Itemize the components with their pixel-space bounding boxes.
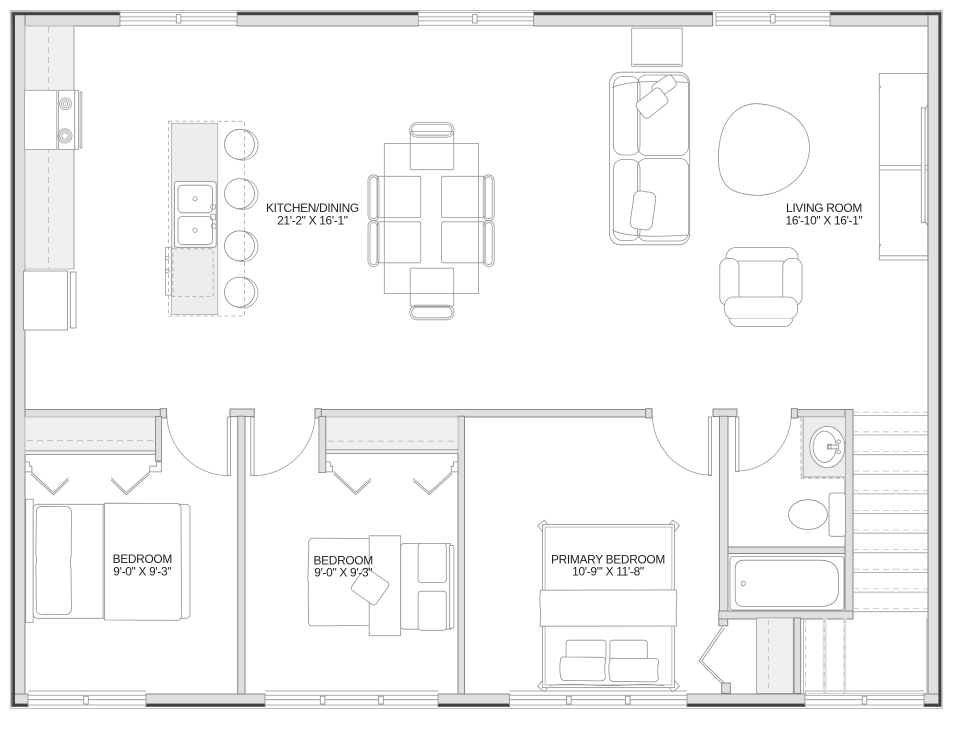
svg-text:21'-2" X 16'-1": 21'-2" X 16'-1"	[277, 214, 348, 228]
svg-text:16'-10" X 16'-1": 16'-10" X 16'-1"	[786, 214, 863, 228]
svg-text:9'-0" X 9'-3": 9'-0" X 9'-3"	[113, 564, 171, 578]
svg-text:9'-0" X 9'-3": 9'-0" X 9'-3"	[314, 565, 372, 579]
svg-text:10'-9"' X 11'-8": 10'-9"' X 11'-8"	[572, 565, 644, 579]
